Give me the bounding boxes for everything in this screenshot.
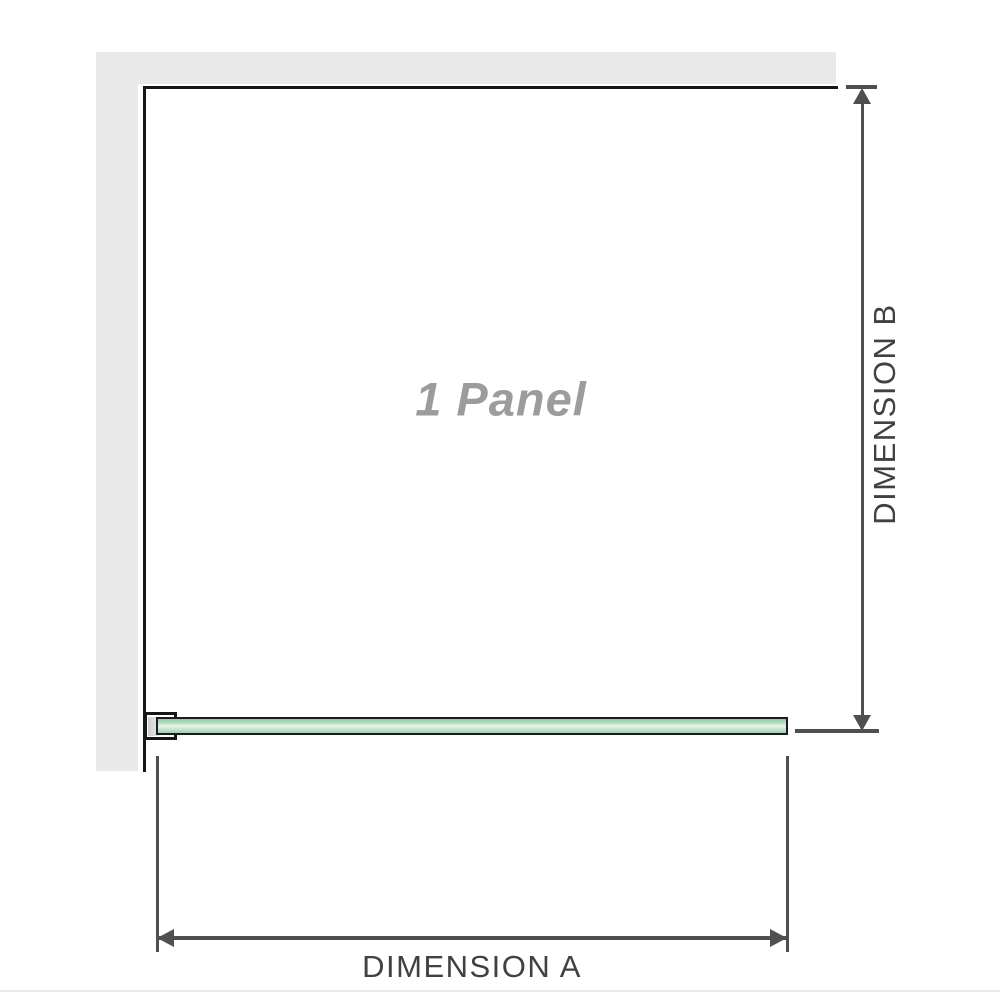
panel-outline-left	[143, 86, 146, 772]
wall-top	[96, 52, 836, 84]
arrow-up-icon	[853, 88, 871, 104]
glass-panel	[156, 717, 788, 735]
panel-outline-top	[143, 86, 838, 89]
dimension-a-line	[158, 936, 786, 940]
dimension-a-label: DIMENSION A	[362, 949, 582, 985]
arrow-left-icon	[157, 929, 174, 947]
dimension-a-extension-left	[156, 756, 159, 952]
arrow-right-icon	[770, 929, 787, 947]
panel-count-label: 1 Panel	[415, 372, 587, 427]
page-baseline	[0, 990, 1000, 992]
dimension-b-line	[861, 100, 864, 718]
dimension-b-label: DIMENSION B	[867, 303, 903, 524]
dimension-a-extension-right	[786, 756, 789, 952]
wall-left	[96, 52, 138, 771]
arrow-down-icon	[853, 715, 871, 731]
diagram-canvas: 1 Panel DIMENSION B DIMENSION A	[0, 0, 1000, 1000]
